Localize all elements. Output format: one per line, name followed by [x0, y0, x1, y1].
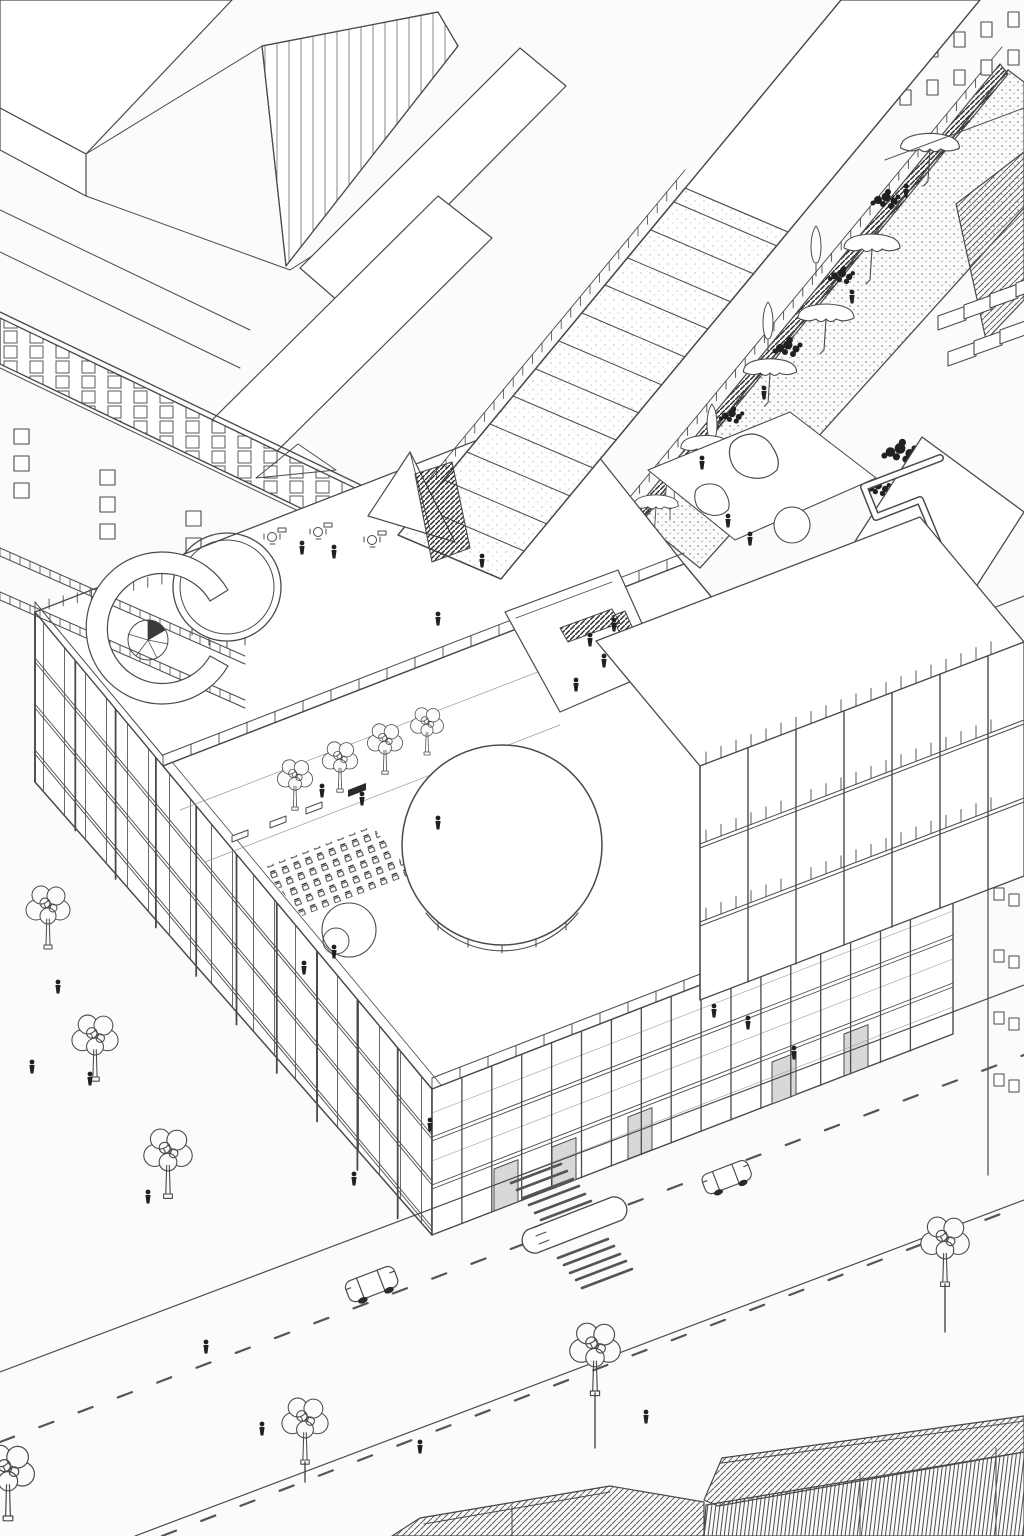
drawing-canvas [0, 0, 1024, 1536]
round-canopy [774, 507, 810, 543]
